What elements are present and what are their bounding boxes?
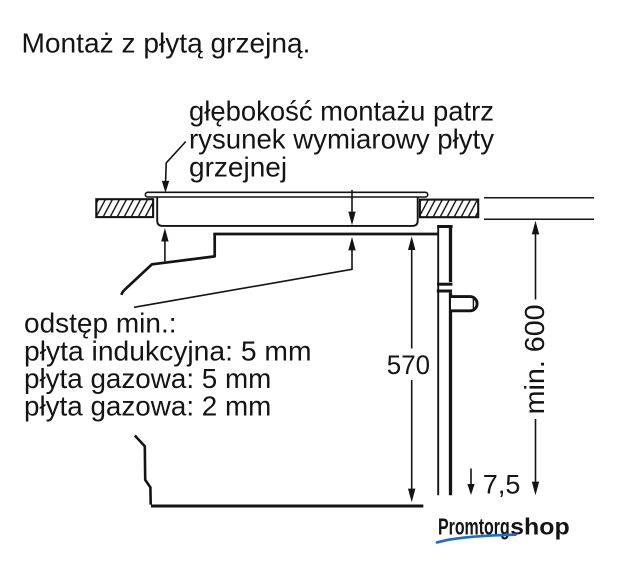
svg-text:7,5: 7,5 (483, 470, 521, 500)
svg-text:shop: shop (510, 514, 570, 540)
svg-text:głębokość montażu patrz: głębokość montażu patrz (189, 96, 494, 127)
svg-text:grzejnej: grzejnej (189, 151, 287, 182)
svg-text:płyta gazowa: 5 mm: płyta gazowa: 5 mm (24, 363, 271, 394)
svg-text:rysunek wymiarowy płyty: rysunek wymiarowy płyty (189, 124, 494, 155)
svg-text:odstęp min.:: odstęp min.: (24, 308, 177, 339)
svg-text:min. 600: min. 600 (519, 304, 550, 414)
svg-text:płyta gazowa: 2 mm: płyta gazowa: 2 mm (24, 391, 271, 422)
svg-text:570: 570 (387, 350, 430, 380)
svg-text:Montaż z płytą grzejną.: Montaż z płytą grzejną. (22, 28, 311, 59)
svg-text:płyta indukcyjna: 5 mm: płyta indukcyjna: 5 mm (24, 335, 312, 366)
